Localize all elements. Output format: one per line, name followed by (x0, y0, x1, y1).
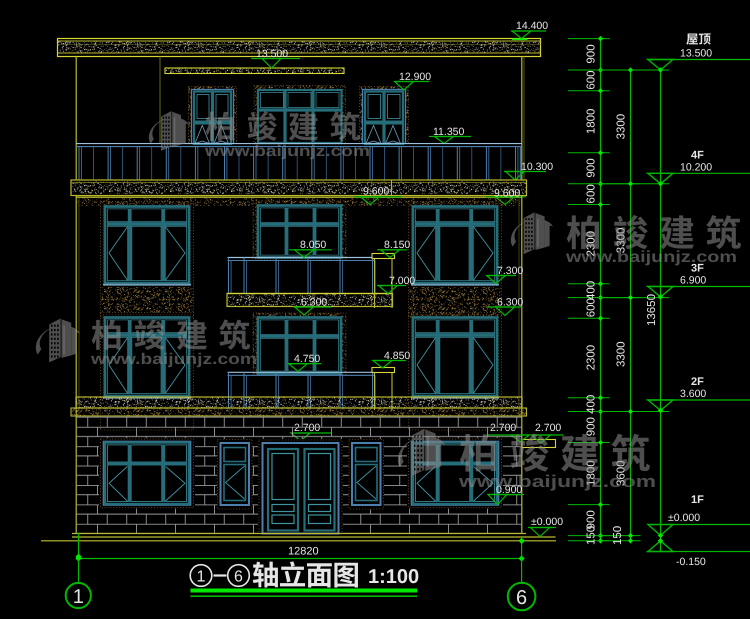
svg-text:7.000: 7.000 (389, 275, 415, 287)
svg-text:6.900: 6.900 (680, 275, 706, 287)
svg-text:www.baijunjz.com: www.baijunjz.com (204, 143, 370, 160)
svg-text:400: 400 (586, 281, 598, 300)
svg-text:600: 600 (586, 298, 598, 317)
svg-text:www.baijunjz.com: www.baijunjz.com (90, 351, 257, 368)
svg-text:150: 150 (612, 526, 624, 545)
svg-text:www.baijunjz.com: www.baijunjz.com (565, 249, 737, 266)
svg-text:±0.000: ±0.000 (668, 512, 700, 524)
svg-text:3300: 3300 (616, 114, 628, 140)
svg-text:2.700: 2.700 (535, 422, 561, 434)
svg-text:1F: 1F (691, 494, 704, 506)
svg-text:150: 150 (586, 526, 598, 545)
svg-text:13.500: 13.500 (680, 48, 712, 60)
svg-text:9.600: 9.600 (494, 188, 520, 200)
svg-text:2F: 2F (691, 376, 704, 388)
svg-text:www.baijunjz.com: www.baijunjz.com (458, 472, 656, 491)
svg-text:3.600: 3.600 (680, 388, 706, 400)
svg-text:10.300: 10.300 (521, 161, 553, 173)
svg-text:8.050: 8.050 (300, 239, 326, 251)
svg-text:11.350: 11.350 (433, 126, 464, 138)
svg-text:1: 1 (197, 569, 206, 586)
svg-text:10.200: 10.200 (680, 161, 712, 173)
svg-text:600: 600 (586, 184, 598, 203)
svg-text:900: 900 (586, 417, 598, 436)
svg-text:6: 6 (234, 569, 243, 586)
svg-text:6: 6 (516, 587, 527, 609)
svg-text:2300: 2300 (586, 345, 598, 371)
svg-text:6.300: 6.300 (497, 297, 523, 309)
svg-text:13.500: 13.500 (256, 48, 288, 60)
svg-text:6.300: 6.300 (301, 297, 327, 309)
svg-text:9.600: 9.600 (363, 186, 389, 198)
svg-text:3300: 3300 (616, 341, 628, 367)
svg-text:12.900: 12.900 (399, 71, 431, 83)
svg-text:1800: 1800 (586, 109, 598, 135)
svg-text:13650: 13650 (646, 294, 658, 326)
svg-text:8.150: 8.150 (384, 239, 410, 251)
svg-text:±0.000: ±0.000 (531, 516, 563, 528)
svg-text:14.400: 14.400 (516, 20, 548, 32)
svg-text:1: 1 (73, 586, 84, 608)
svg-text:-0.150: -0.150 (676, 556, 706, 568)
svg-text:4.850: 4.850 (384, 350, 410, 362)
svg-text:12820: 12820 (288, 546, 319, 558)
svg-text:1:100: 1:100 (368, 566, 419, 588)
svg-text:900: 900 (586, 44, 598, 63)
svg-text:900: 900 (586, 158, 598, 177)
svg-text:400: 400 (586, 395, 598, 414)
svg-text:4F: 4F (691, 149, 704, 161)
svg-text:4.750: 4.750 (294, 353, 320, 365)
svg-text:600: 600 (586, 70, 598, 89)
svg-text:7.300: 7.300 (497, 265, 523, 277)
